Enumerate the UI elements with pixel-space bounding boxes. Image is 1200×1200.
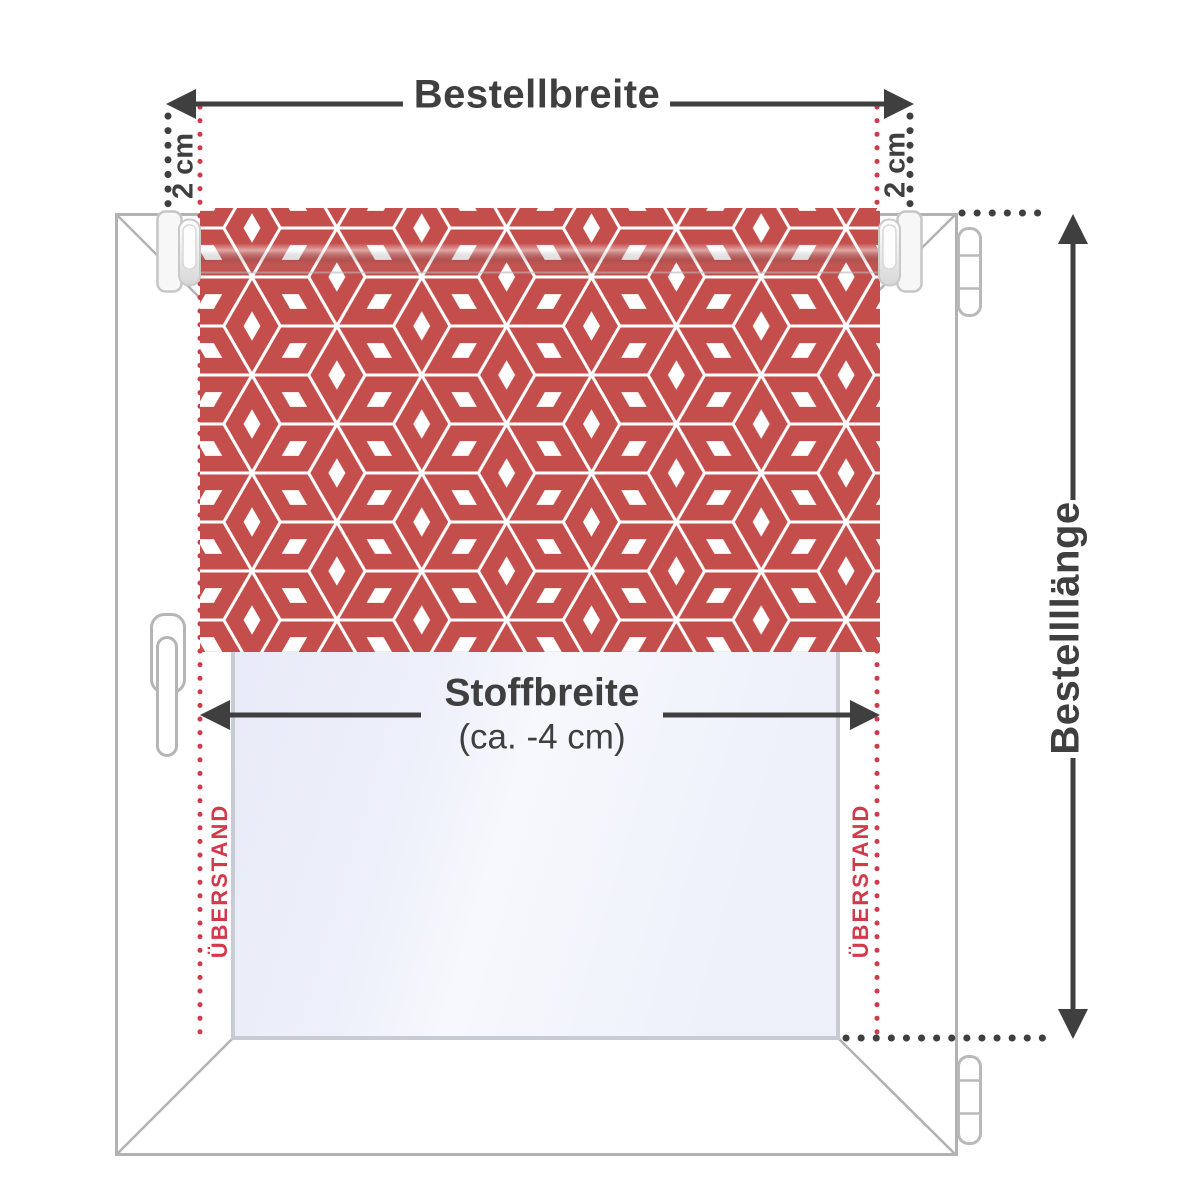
fabric-width-label: Stoffbreite [445,670,640,716]
measurement-diagram: Bestellbreite 2 cm 2 cm Stoffbreite (ca.… [0,0,1200,1200]
fabric-width-label-block: Stoffbreite (ca. -4 cm) [445,670,640,757]
overhang-right-label: ÜBERSTAND [848,804,874,958]
order-length-label: Bestellllänge [1044,501,1089,754]
blind-pattern [200,208,880,652]
roller-blind [158,208,922,652]
arrowhead-up-icon [1058,214,1088,244]
overhang-left-label: ÜBERSTAND [207,804,233,958]
offset-2cm-right-label: 2 cm [880,132,913,198]
order-width-label: Bestellbreite [414,73,661,118]
hinge-bottom [959,1057,981,1144]
roller-tube-shading [200,208,880,272]
roller-bracket-left [158,212,201,292]
roller-bracket-right [879,212,922,292]
fabric-width-note: (ca. -4 cm) [445,716,640,757]
arrowhead-down-icon [1058,1009,1088,1039]
hinge-top [959,229,981,316]
offset-2cm-left-label: 2 cm [168,133,201,199]
